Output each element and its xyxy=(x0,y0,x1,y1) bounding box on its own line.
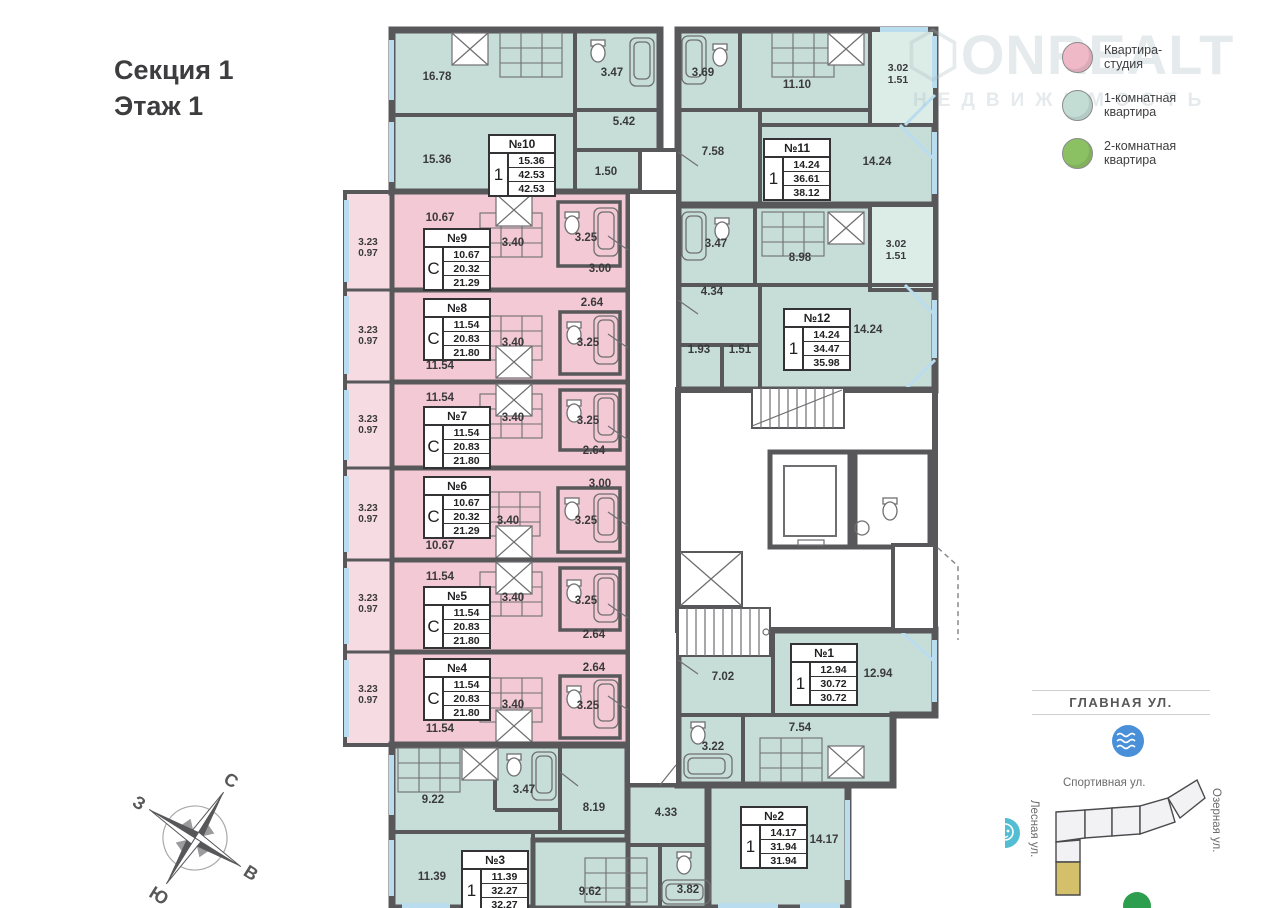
room-area: 7.58 xyxy=(702,146,724,158)
balcony-area: 1.51 xyxy=(888,74,908,86)
room-area: 2.64 xyxy=(583,629,605,641)
apartment-type: 1 xyxy=(490,154,507,195)
compass-rose: С В Ю З xyxy=(105,762,295,908)
legend-label: 2-комнатная квартира xyxy=(1104,138,1199,167)
room-area: 11.10 xyxy=(783,79,811,91)
room-area: 3.40 xyxy=(502,337,524,349)
balcony-label: 3.230.97 xyxy=(358,414,377,436)
room-area: 11.39 xyxy=(418,871,446,883)
compass-south: Ю xyxy=(146,882,172,908)
apartment-number: №6 xyxy=(425,478,489,496)
room-area: 5.42 xyxy=(613,116,635,128)
room-area: 9.22 xyxy=(422,794,444,806)
room-area: 3.22 xyxy=(702,741,724,753)
apartment-card-12[interactable]: №12 1 14.2434.4735.98 xyxy=(783,308,851,371)
room-area: 2.64 xyxy=(583,445,605,457)
apartment-number: №7 xyxy=(425,408,489,426)
apartment-type: С xyxy=(425,606,442,647)
apartment-type: С xyxy=(425,318,442,359)
room-area: 11.54 xyxy=(426,360,454,372)
room-area: 4.33 xyxy=(655,807,677,819)
apartment-card-6[interactable]: №6 С 10.6720.3221.29 xyxy=(423,476,491,539)
plan-header: Секция 1 Этаж 1 xyxy=(114,52,234,124)
room-area: 3.47 xyxy=(601,67,623,79)
sport-street-label: Спортивная ул. xyxy=(1063,777,1145,789)
room-area: 3.47 xyxy=(513,784,535,796)
one-room-color-dot xyxy=(1062,90,1093,121)
room-area: 3.00 xyxy=(589,263,611,275)
apartment-card-2[interactable]: №2 1 14.1731.9431.94 xyxy=(740,806,808,869)
room-area: 10.67 xyxy=(426,212,455,224)
floor-title: Этаж 1 xyxy=(114,88,234,124)
apartment-type: С xyxy=(425,426,442,467)
room-area: 11.54 xyxy=(426,723,454,735)
room-area: 3.25 xyxy=(577,700,599,712)
common-wc xyxy=(855,452,930,547)
apartment-card-4[interactable]: №4 С 11.5420.8321.80 xyxy=(423,658,491,721)
room-area: 7.54 xyxy=(789,722,811,734)
room-area: 14.17 xyxy=(810,834,839,846)
apartment-card-11[interactable]: №11 1 14.2436.6138.12 xyxy=(763,138,831,201)
apartment-type: 1 xyxy=(785,328,802,369)
room-area: 16.78 xyxy=(423,71,452,83)
room-area: 3.69 xyxy=(692,67,714,79)
room-area: 11.54 xyxy=(426,392,454,404)
apartment-type: 1 xyxy=(765,158,782,199)
apartment-number: №9 xyxy=(425,230,489,248)
kindergarten-icon xyxy=(1005,818,1020,848)
two-room-color-dot xyxy=(1062,138,1093,169)
shaft-x xyxy=(680,552,742,606)
room-area: 3.25 xyxy=(577,415,599,427)
apartment-number: №11 xyxy=(765,140,829,158)
balcony-label: 3.230.97 xyxy=(358,325,377,347)
park-icon xyxy=(1123,892,1151,908)
building-footprint xyxy=(1056,780,1205,895)
legend: Квартира-студия 1-комнатная квартира 2-к… xyxy=(1062,42,1262,186)
studio-balconies xyxy=(344,192,392,745)
apartment-card-8[interactable]: №8 С 11.5420.8321.80 xyxy=(423,298,491,361)
room-area: 4.34 xyxy=(701,286,723,298)
apartment-card-9[interactable]: №9 С 10.6720.3221.29 xyxy=(423,228,491,291)
room-area: 14.24 xyxy=(863,156,892,168)
room-area: 3.25 xyxy=(575,515,597,527)
apartment-number: №8 xyxy=(425,300,489,318)
legend-item-one-room: 1-комнатная квартира xyxy=(1062,90,1262,121)
apartment-number: №10 xyxy=(490,136,554,154)
room-area: 10.67 xyxy=(426,540,455,552)
apartment-type: С xyxy=(425,678,442,719)
balcony-label: 3.230.97 xyxy=(358,593,377,615)
apartment-card-3[interactable]: №3 1 11.3932.2732.27 xyxy=(461,850,529,908)
room-area: 3.00 xyxy=(589,478,611,490)
room-area: 8.98 xyxy=(789,252,811,264)
room-area: 1.50 xyxy=(595,166,617,178)
lake-street-label: Озерная ул. xyxy=(1210,788,1222,852)
balcony-area: 1.51 xyxy=(886,250,906,262)
room-area: 7.02 xyxy=(712,671,734,683)
room-area: 1.51 xyxy=(729,344,751,356)
room-area: 1.93 xyxy=(688,344,710,356)
stairs-upper xyxy=(752,388,844,428)
room-area: 2.64 xyxy=(581,297,603,309)
room-area: 15.36 xyxy=(423,154,452,166)
room-area: 9.62 xyxy=(579,886,601,898)
balcony-label: 3.230.97 xyxy=(358,684,377,706)
apartment-number: №2 xyxy=(742,808,806,826)
room-area: 2.64 xyxy=(583,662,605,674)
building-entrance xyxy=(893,545,958,640)
room-area: 3.40 xyxy=(502,412,524,424)
room-area: 3.25 xyxy=(577,337,599,349)
forest-street-label: Лесная ул. xyxy=(1028,800,1040,857)
apartment-number: №3 xyxy=(463,852,527,870)
compass-north: С xyxy=(220,768,242,792)
legend-label: 1-комнатная квартира xyxy=(1104,90,1199,119)
room-area: 3.40 xyxy=(502,699,524,711)
studio-color-dot xyxy=(1062,42,1093,73)
pool-icon xyxy=(1112,725,1144,757)
apartment-card-10[interactable]: №10 1 15.3642.5342.53 xyxy=(488,134,556,197)
apartment-number: №1 xyxy=(792,645,856,663)
apartment-type: 1 xyxy=(463,870,480,908)
room-area: 3.40 xyxy=(502,592,524,604)
floorplan-page: 16.78 15.36 3.47 5.42 1.50 3.69 11.10 3.… xyxy=(0,0,1280,908)
compass-west: З xyxy=(129,792,149,815)
apartment-type: 1 xyxy=(742,826,759,867)
balcony-area: 3.02 xyxy=(886,238,906,250)
elevator xyxy=(770,452,850,547)
apartment-number: №12 xyxy=(785,310,849,328)
legend-label: Квартира-студия xyxy=(1104,42,1199,71)
room-area: 11.54 xyxy=(426,571,454,583)
compass-east: В xyxy=(240,861,262,885)
section-title: Секция 1 xyxy=(114,52,234,88)
room-area: 3.40 xyxy=(502,237,524,249)
apartment-number: №4 xyxy=(425,660,489,678)
legend-item-studio: Квартира-студия xyxy=(1062,42,1262,73)
balcony-label: 3.230.97 xyxy=(358,237,377,259)
room-area: 3.25 xyxy=(575,595,597,607)
apartment-type: 1 xyxy=(792,663,809,704)
balcony-area: 3.02 xyxy=(888,62,908,74)
apartment-type: С xyxy=(425,248,442,289)
room-area: 3.25 xyxy=(575,232,597,244)
apartment-type: С xyxy=(425,496,442,537)
main-street-label: ГЛАВНАЯ УЛ. xyxy=(1032,690,1210,715)
room-area: 12.94 xyxy=(864,668,893,680)
apartment-card-7[interactable]: №7 С 11.5420.8321.80 xyxy=(423,406,491,469)
room-area: 3.40 xyxy=(497,515,519,527)
apartment-number: №5 xyxy=(425,588,489,606)
apartment-card-1[interactable]: №1 1 12.9430.7230.72 xyxy=(790,643,858,706)
room-area: 14.24 xyxy=(854,324,883,336)
room-area: 3.82 xyxy=(677,884,699,896)
room-area: 8.19 xyxy=(583,802,605,814)
room-area: 3.47 xyxy=(705,238,727,250)
legend-item-two-room: 2-комнатная квартира xyxy=(1062,138,1262,169)
balcony-label: 3.230.97 xyxy=(358,503,377,525)
stairs-lower xyxy=(678,608,770,656)
current-section-highlight xyxy=(1056,862,1080,895)
apartment-card-5[interactable]: №5 С 11.5420.8321.80 xyxy=(423,586,491,649)
